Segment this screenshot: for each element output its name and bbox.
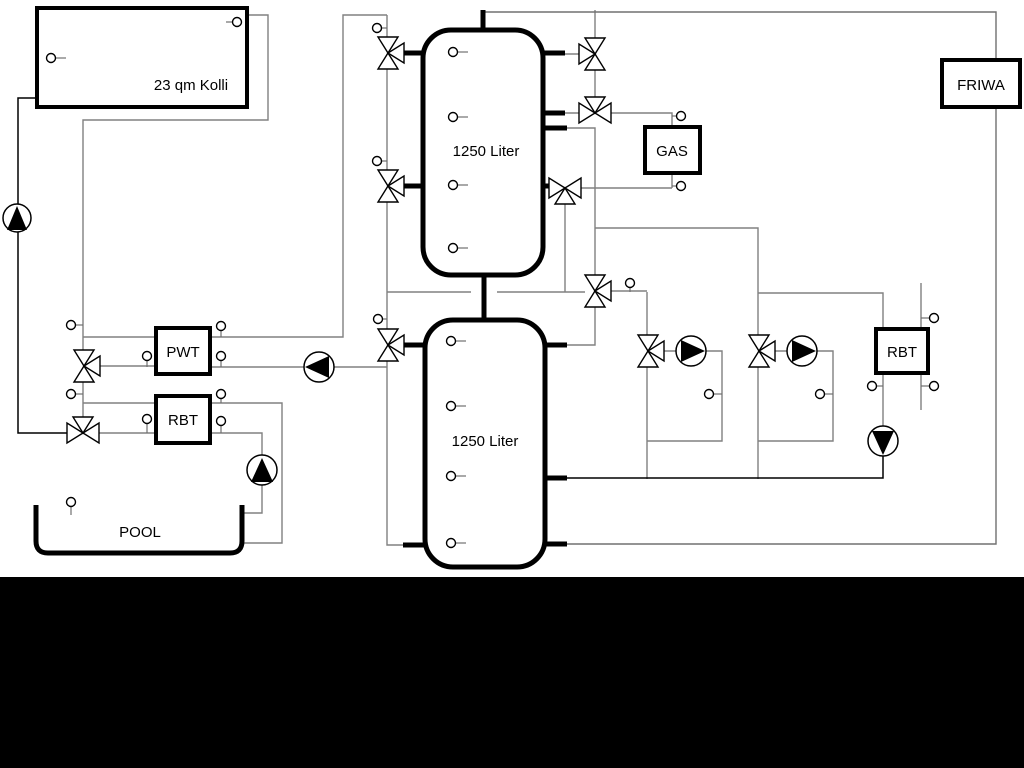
pump-pool	[247, 455, 277, 485]
upper-tank-label: 1250 Liter	[453, 143, 520, 160]
pump-heating-circuit-1	[676, 336, 706, 366]
gas-label: GAS	[656, 143, 688, 160]
lower-tank-label: 1250 Liter	[452, 433, 519, 450]
pwt-label: PWT	[166, 344, 199, 361]
schematic-page: 1250 Liter 1250 Liter 23 qm Kolli PWT RB…	[0, 0, 1024, 768]
solar-collector-label: 23 qm Kolli	[154, 77, 228, 94]
rbt-left-label: RBT	[168, 412, 198, 429]
pump-rbt-right	[868, 426, 898, 456]
hydraulic-schematic: 1250 Liter 1250 Liter 23 qm Kolli PWT RB…	[0, 0, 1024, 768]
pump-heating-circuit-2	[787, 336, 817, 366]
pool-label: POOL	[119, 524, 161, 541]
rbt-right-label: RBT	[887, 344, 917, 361]
friwa-label: FRIWA	[957, 77, 1005, 94]
bottom-black-band	[0, 577, 1024, 768]
pump-solar	[3, 204, 31, 232]
pump-pwt-secondary	[304, 352, 334, 382]
